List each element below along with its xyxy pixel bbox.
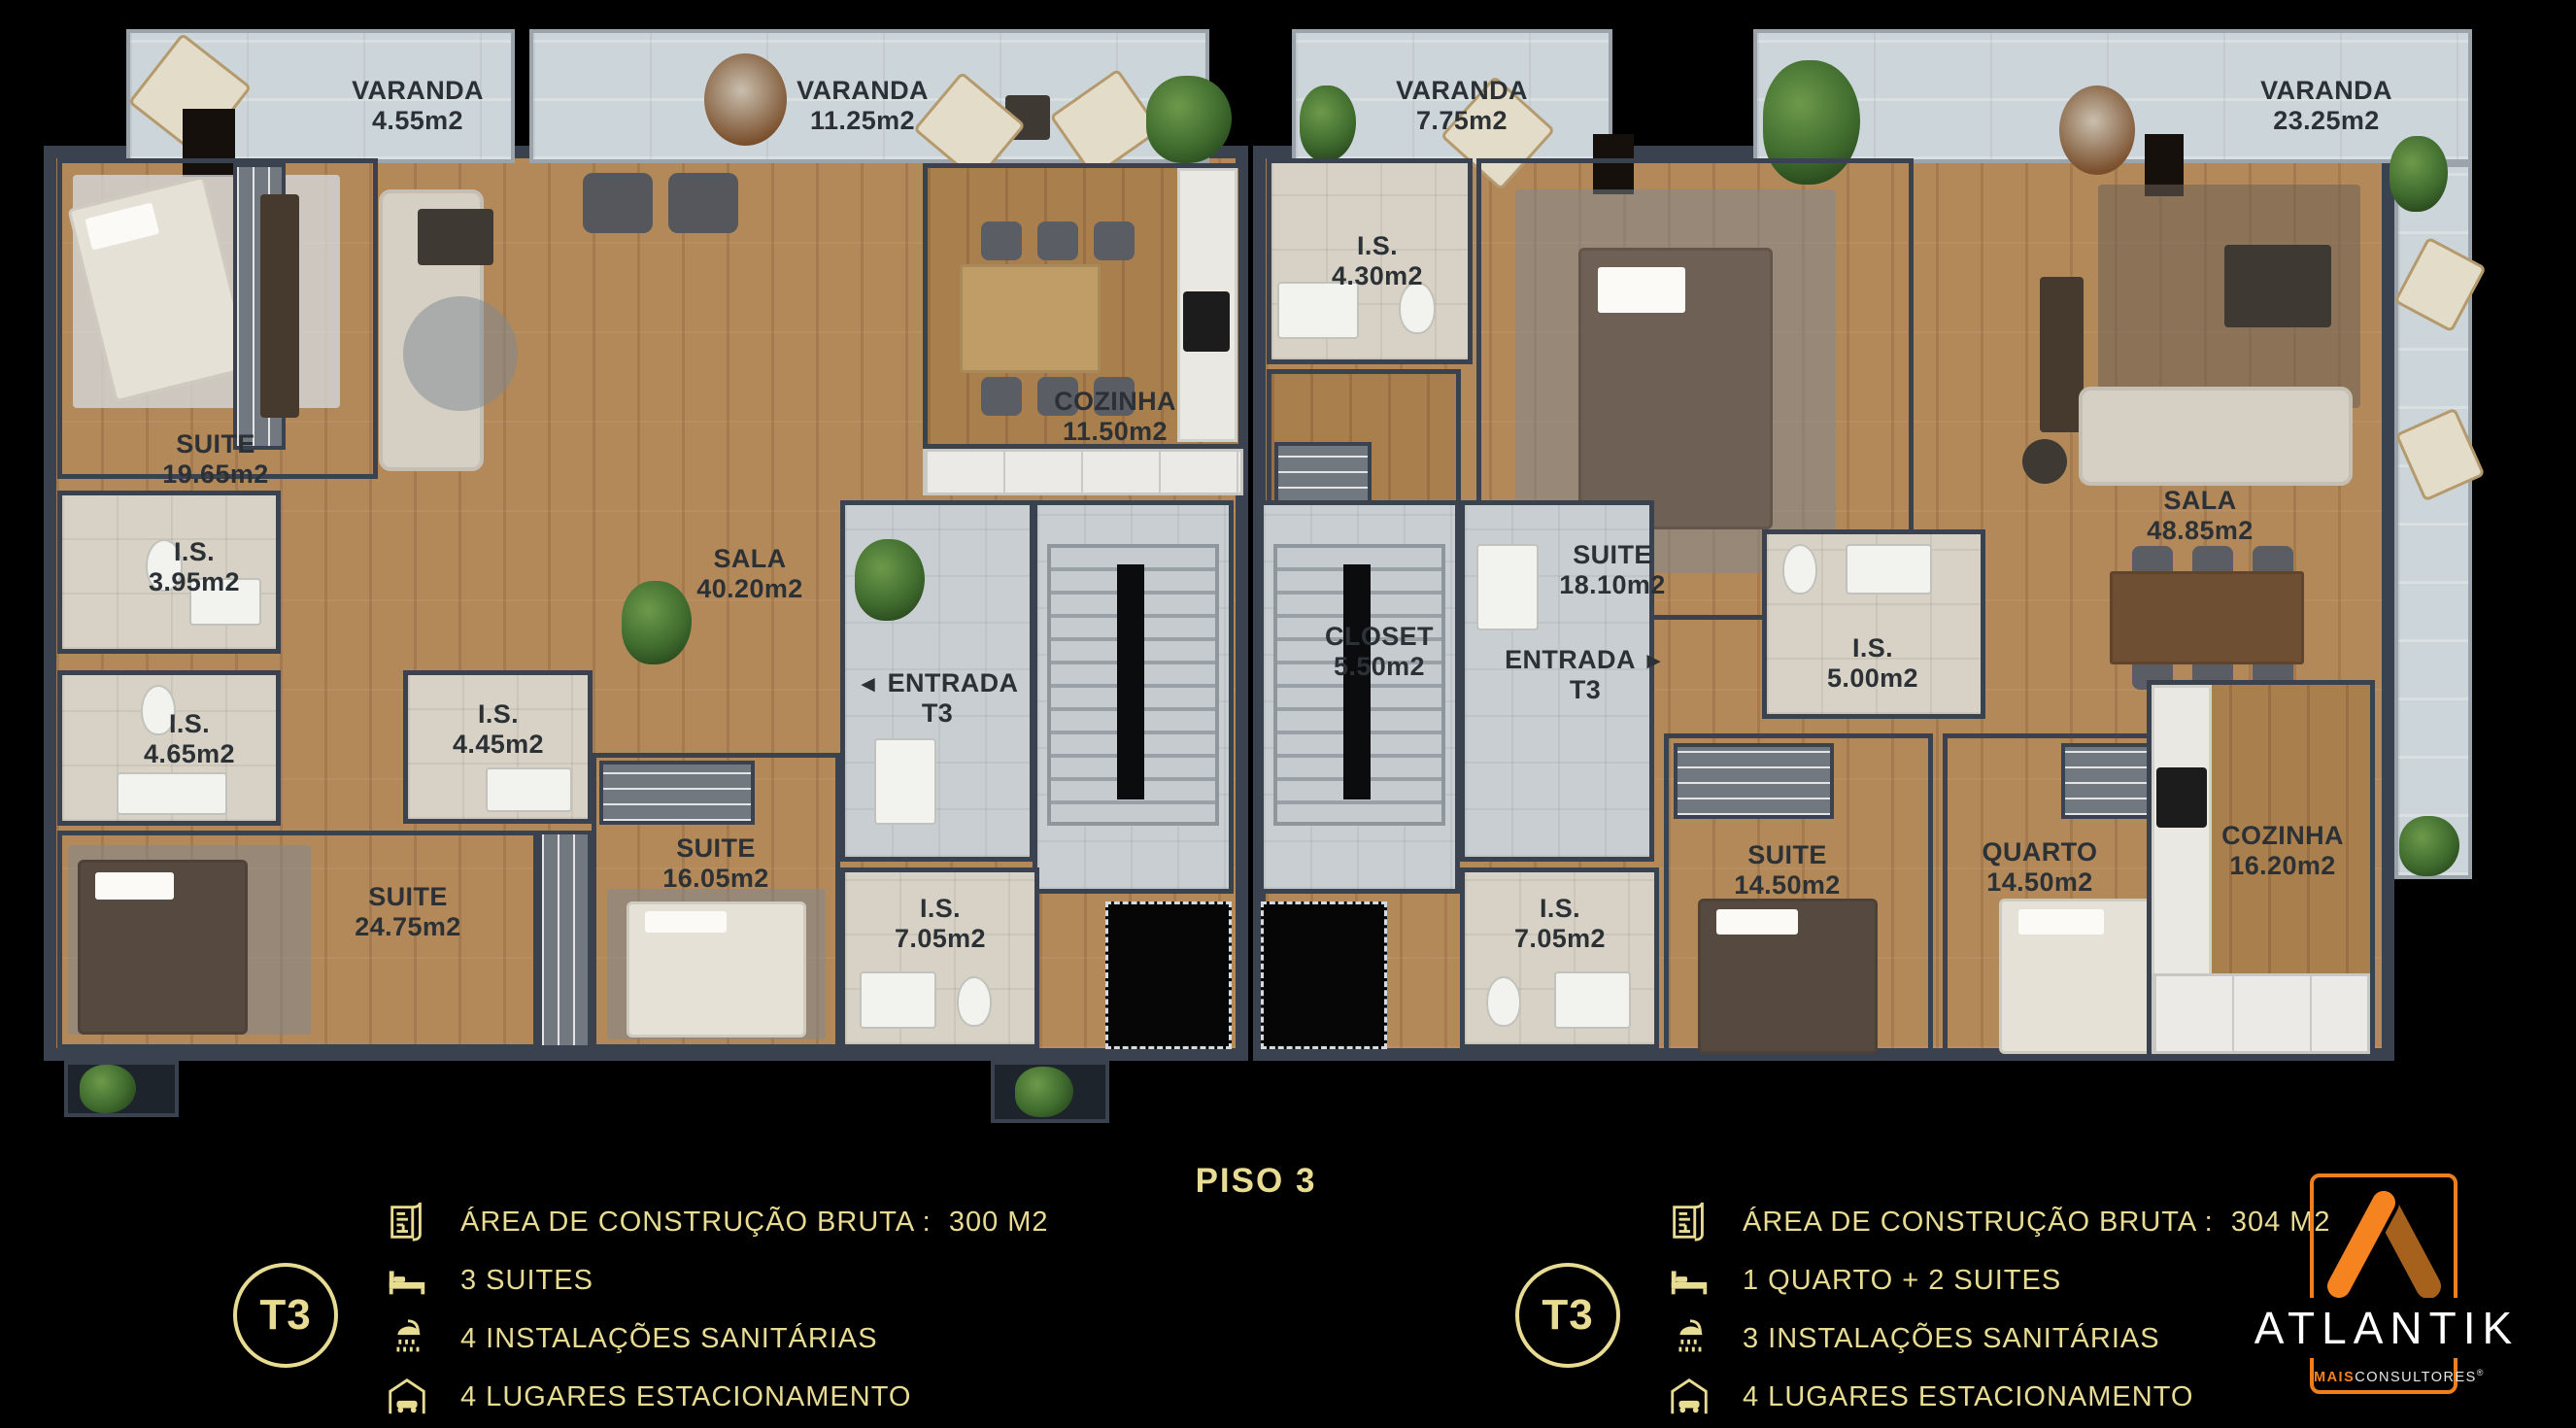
appliance-counter — [923, 449, 1243, 495]
page-title: PISO 3 — [1120, 1162, 1392, 1201]
atlantik-a-mark-icon — [2310, 1183, 2457, 1309]
vanity-sink — [1554, 971, 1631, 1029]
bed — [1698, 899, 1878, 1054]
appliance-counter — [2152, 973, 2370, 1054]
coffee-table — [2224, 245, 2331, 327]
veranda-label: VARANDA7.75m2 — [1306, 76, 1617, 137]
room-label-suite-24-75: SUITE24.75m2 — [253, 882, 563, 943]
veranda-label: VARANDA23.25m2 — [2171, 76, 2482, 137]
wardrobe — [1674, 743, 1834, 819]
legend-left-row-parking: 4 LUGARES ESTACIONAMENTO — [385, 1372, 911, 1422]
toilet — [1486, 976, 1521, 1027]
cooktop — [1183, 291, 1230, 352]
legend-right-row-quartos: 1 QUARTO + 2 SUITES — [1667, 1255, 2061, 1306]
elevator-left — [1105, 901, 1232, 1049]
dining-chairs — [981, 221, 1022, 260]
bed — [1578, 248, 1773, 529]
vanity-sink — [1846, 544, 1932, 595]
vanity-sink — [117, 772, 227, 815]
atlantik-sub-accent: MAIS — [2314, 1370, 2355, 1385]
room-label-entrada-right: ENTRADA ► T3 — [1430, 645, 1741, 706]
t3-badge-right: T3 — [1515, 1263, 1620, 1368]
vanity-sink — [486, 767, 572, 812]
veranda-label: VARANDA4.55m2 — [262, 76, 573, 137]
round-rug — [403, 296, 518, 411]
wardrobe — [599, 761, 755, 825]
veranda-label: VARANDA11.25m2 — [707, 76, 1018, 137]
vanity-sink — [860, 971, 936, 1029]
cooktop — [2156, 767, 2207, 828]
atlantik-wordmark: ATLANTIK — [2246, 1298, 2527, 1358]
bed-icon — [385, 1258, 429, 1303]
legend-right-row-parking: 4 LUGARES ESTACIONAMENTO — [1667, 1372, 2193, 1422]
tv-sideboard — [2040, 277, 2084, 432]
room-label-sala-40-20: SALA40.20m2 — [594, 544, 905, 605]
bed — [627, 901, 806, 1037]
room-label-is-4-45: I.S.4.45m2 — [343, 699, 654, 761]
room-label-is-4-65: I.S.4.65m2 — [34, 709, 345, 770]
room-label-cozinha-16-20: COZINHA16.20m2 — [2127, 821, 2438, 882]
car-garage-icon — [1667, 1375, 1712, 1419]
hanging-chair — [2059, 85, 2135, 175]
room-label-sala-48-85: SALA48.85m2 — [2045, 486, 2356, 547]
legend-right-row-banhos: 3 INSTALAÇÕES SANITÁRIAS — [1667, 1313, 2160, 1364]
dining-table — [2110, 571, 2304, 664]
room-label-entrada-left: ◄ ENTRADA T3 — [782, 668, 1093, 730]
registered-mark: ® — [2477, 1368, 2485, 1377]
room-label-suite-16-05: SUITE16.05m2 — [560, 833, 871, 895]
sofa — [2079, 387, 2353, 486]
blueprint-icon — [1667, 1200, 1712, 1244]
room-label-is-5-00: I.S.5.00m2 — [1717, 633, 2028, 695]
t3-badge-left: T3 — [233, 1263, 338, 1368]
coffee-table — [418, 209, 493, 265]
room-label-is-7-05-left: I.S.7.05m2 — [785, 894, 1096, 955]
bed — [78, 860, 248, 1035]
room-label-suite-19-65: SUITE19.65m2 — [60, 429, 371, 491]
blueprint-icon — [385, 1200, 429, 1244]
room-label-is-7-05-right: I.S.7.05m2 — [1405, 894, 1715, 955]
atlantik-sub-rest: CONSULTORES — [2355, 1370, 2477, 1385]
room-label-suite-18-10: SUITE18.10m2 — [1457, 540, 1768, 601]
staircase-right — [1273, 544, 1445, 826]
toilet — [1782, 544, 1817, 595]
shower-icon — [385, 1316, 429, 1361]
legend-left-row-area: ÁREA DE CONSTRUÇÃO BRUTA : 300 M2 — [385, 1197, 1049, 1247]
entry-arrow-right-icon: ► — [1643, 648, 1666, 674]
stool — [2022, 439, 2067, 484]
tv-sideboard — [260, 194, 299, 418]
atlantik-subtitle: MAISCONSULTORES® — [2314, 1368, 2455, 1385]
entry-arrow-left-icon: ◄ — [857, 671, 880, 697]
elevator-right — [1261, 901, 1387, 1049]
legend-left-row-suites: 3 SUITES — [385, 1255, 593, 1306]
bed-icon — [1667, 1258, 1712, 1303]
car-garage-icon — [385, 1375, 429, 1419]
room-label-cozinha-11-50: COZINHA11.50m2 — [960, 387, 1271, 448]
shower-icon — [1667, 1316, 1712, 1361]
room-label-is-3-95: I.S.3.95m2 — [39, 537, 350, 598]
entry-bench — [874, 738, 936, 825]
room-label-is-4-30: I.S.4.30m2 — [1222, 231, 1533, 292]
legend-right-row-area: ÁREA DE CONSTRUÇÃO BRUTA : 304 M2 — [1667, 1197, 2331, 1247]
legend-left-row-banhos: 4 INSTALAÇÕES SANITÁRIAS — [385, 1313, 878, 1364]
armchair — [583, 173, 653, 233]
toilet — [957, 976, 992, 1027]
dining-table — [960, 264, 1101, 373]
armchair — [668, 173, 738, 233]
